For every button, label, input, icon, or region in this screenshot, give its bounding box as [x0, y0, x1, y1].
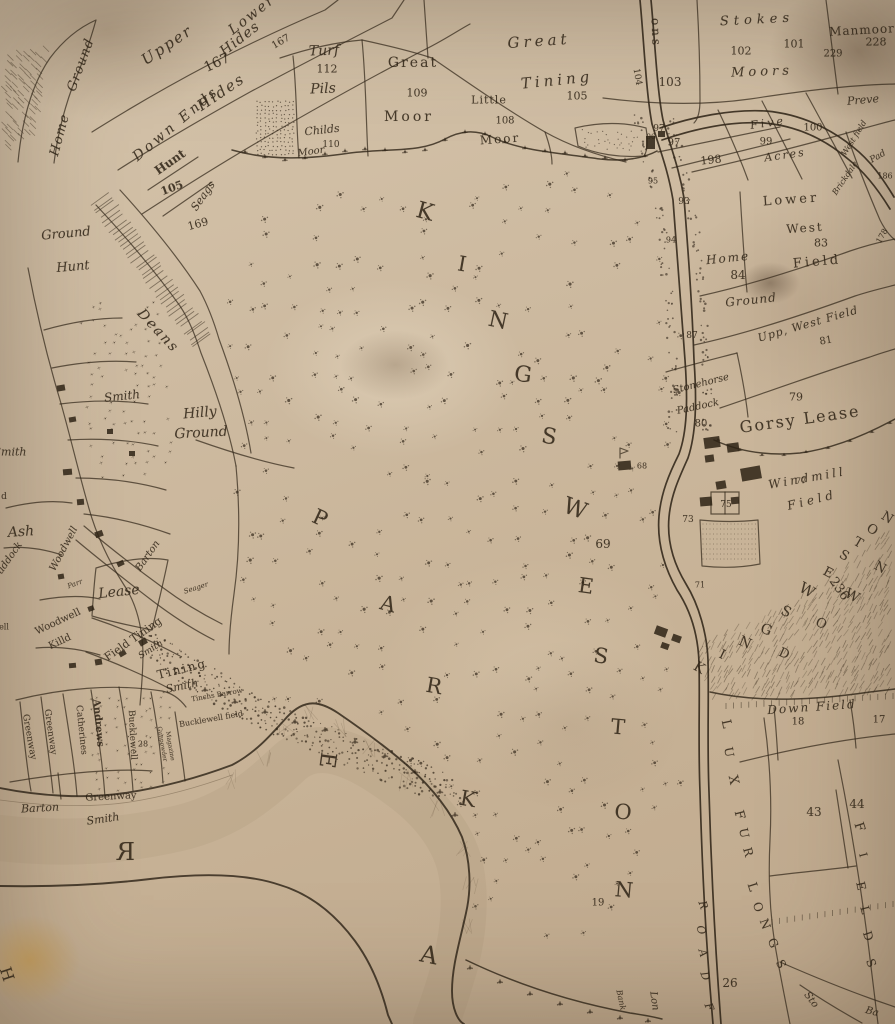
building — [726, 442, 739, 453]
building — [87, 605, 94, 612]
map-label: 73 — [682, 515, 693, 525]
building — [731, 497, 740, 505]
map-label: 19 — [592, 898, 605, 909]
map-label: E — [314, 750, 341, 769]
building — [703, 436, 720, 449]
map-label: 80 — [695, 419, 708, 430]
map-label: 94 — [666, 236, 676, 245]
building — [715, 480, 726, 490]
map-label: d — [1, 492, 7, 502]
map-label: 109 — [407, 87, 428, 100]
map-label: G — [513, 361, 534, 388]
map-label: 75 — [720, 500, 731, 510]
map-label: 44 — [849, 797, 864, 811]
map-label: Hilly — [183, 404, 218, 423]
map-label: 87 — [686, 331, 697, 341]
building — [618, 460, 632, 470]
estate-map: LowerHides167Upper167HidesGroundHomeDown… — [0, 0, 895, 1024]
building — [700, 496, 713, 506]
building — [129, 451, 135, 456]
building — [654, 625, 668, 638]
building — [69, 663, 76, 669]
map-label: 97 — [668, 138, 681, 149]
map-label: 99 — [760, 137, 773, 148]
map-label: Hunt — [56, 258, 90, 276]
map-label: 108 — [495, 116, 514, 127]
building — [69, 416, 77, 422]
map-label: 26 — [722, 976, 737, 990]
map-label: R — [117, 838, 135, 866]
river-water — [0, 750, 464, 1024]
map-label: Moor — [479, 131, 520, 148]
map-label: 43 — [806, 805, 821, 819]
map-label: 84 — [730, 268, 745, 282]
map-label: ons — [648, 18, 663, 49]
map-label: O — [613, 799, 632, 824]
map-label: 228 — [866, 36, 887, 49]
map-label: 198 — [700, 152, 722, 167]
building — [57, 384, 66, 391]
map-label: 100 — [803, 123, 822, 134]
building — [95, 658, 103, 665]
map-label: 112 — [317, 63, 338, 76]
map-label: 71 — [695, 581, 705, 590]
building — [107, 429, 113, 434]
map-label: Little — [471, 94, 507, 107]
map-label: 110 — [322, 140, 339, 150]
map-label: T — [610, 714, 626, 739]
map-label: Preve — [847, 92, 880, 108]
map-label: 101 — [784, 38, 805, 51]
map-label: 18 — [792, 717, 805, 728]
map-label: Pils — [310, 81, 336, 98]
map-label: 81 — [819, 334, 833, 347]
building — [58, 574, 65, 580]
map-label: Great — [388, 55, 438, 71]
building — [705, 454, 715, 462]
building — [740, 465, 762, 481]
map-label: 102 — [731, 45, 752, 58]
map-label: 83 — [814, 237, 828, 250]
map-label: 103 — [659, 75, 682, 89]
building — [77, 499, 84, 506]
map-label: N — [614, 877, 634, 903]
map-label: 77 — [796, 477, 806, 486]
map-label: Moor — [384, 109, 434, 125]
map-label: Turf — [309, 42, 340, 59]
map-label: 69 — [595, 537, 610, 551]
building — [671, 634, 682, 644]
map-label: Ground — [174, 424, 228, 443]
map-label: ell — [0, 623, 9, 632]
building — [94, 530, 104, 538]
map-label: 79 — [789, 391, 803, 404]
map-label: 186 — [877, 172, 892, 181]
building — [660, 642, 670, 650]
map-label: Moors — [731, 63, 793, 80]
map-label: 93 — [678, 197, 689, 207]
map-label: 95 — [648, 177, 658, 186]
map-label: Smith — [0, 446, 27, 459]
map-label: 68 — [637, 462, 647, 471]
map-label: 96 — [647, 133, 656, 141]
map-label: West — [786, 220, 824, 237]
map-label: 105 — [567, 90, 588, 103]
map-label: Ash — [7, 523, 34, 541]
building — [63, 469, 72, 476]
map-label: Barton — [21, 801, 60, 816]
map-label: 17 — [873, 715, 886, 726]
map-label: 229 — [823, 49, 842, 60]
map-label: 28 — [138, 740, 148, 749]
